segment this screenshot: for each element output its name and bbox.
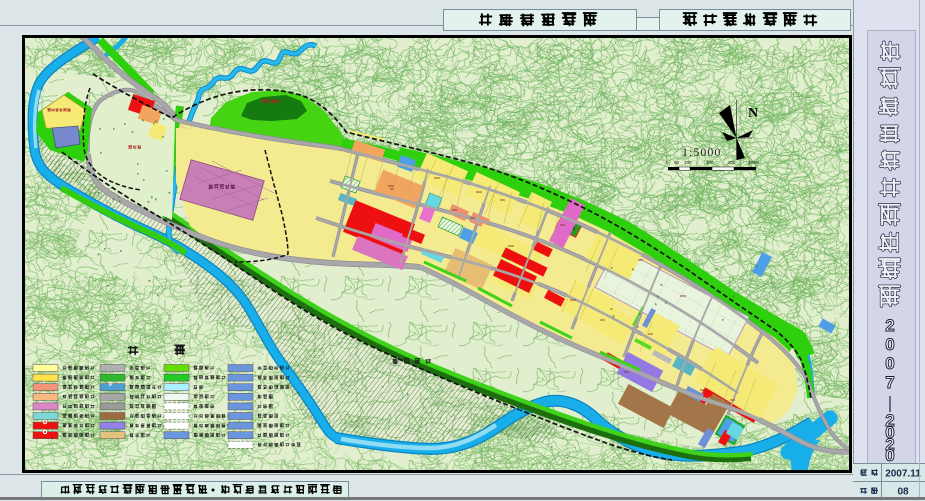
svg-text:7: 7 [885, 373, 894, 392]
svg-text:08: 08 [897, 487, 909, 498]
svg-text:0: 0 [885, 354, 894, 373]
svg-text:100: 100 [684, 160, 692, 165]
svg-text:200: 200 [706, 160, 714, 165]
svg-text:2007.11: 2007.11 [885, 469, 921, 480]
svg-text:N: N [748, 106, 758, 121]
svg-text:400m: 400m [748, 160, 760, 165]
svg-text:2: 2 [885, 316, 894, 335]
svg-text:0: 0 [885, 335, 894, 354]
svg-text:50: 50 [674, 160, 680, 165]
svg-text:300: 300 [728, 160, 736, 165]
svg-text:1:5000: 1:5000 [682, 145, 721, 159]
